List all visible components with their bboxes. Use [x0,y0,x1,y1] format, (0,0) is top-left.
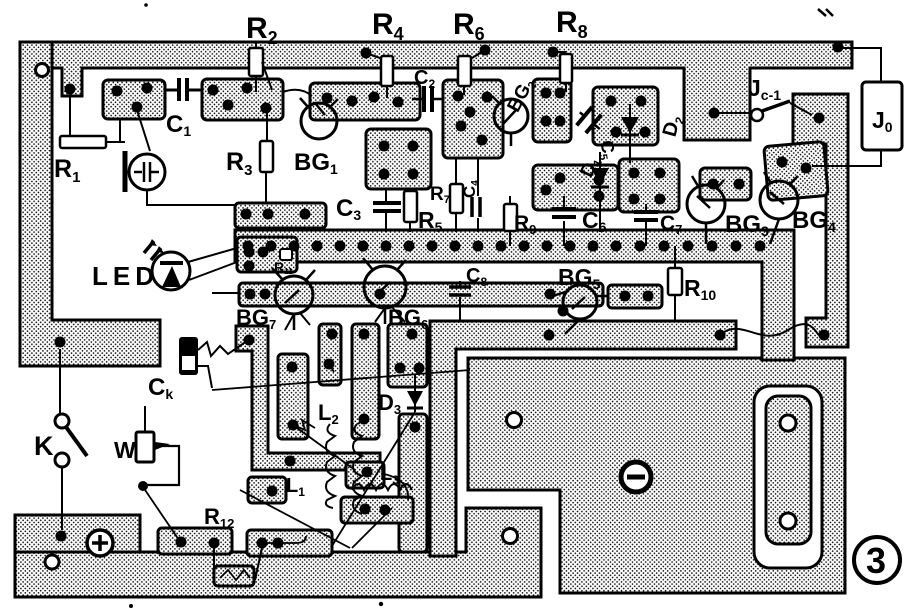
svg-text:3: 3 [866,540,886,581]
svg-text:W: W [114,437,136,463]
svg-text:K: K [34,431,54,461]
svg-text:LED: LED [92,261,159,291]
